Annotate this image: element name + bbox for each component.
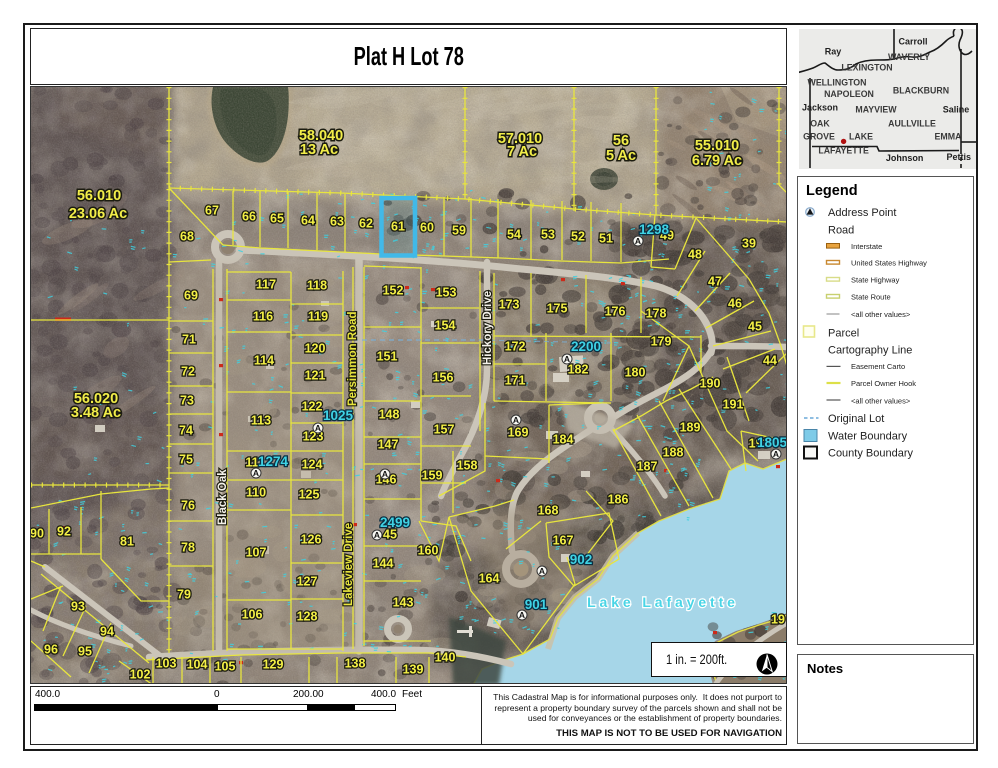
svg-text:106: 106: [242, 607, 263, 621]
svg-text:156: 156: [433, 370, 454, 384]
svg-text:<all other values>: <all other values>: [851, 397, 911, 406]
svg-text:167: 167: [553, 533, 574, 547]
svg-text:186: 186: [608, 492, 629, 506]
svg-text:124: 124: [302, 457, 323, 471]
svg-text:121: 121: [305, 368, 326, 382]
svg-text:103: 103: [156, 656, 177, 670]
svg-text:A: A: [374, 530, 380, 540]
svg-text:173: 173: [499, 297, 520, 311]
svg-text:County Boundary: County Boundary: [828, 448, 913, 460]
svg-text:125: 125: [299, 487, 320, 501]
svg-text:63: 63: [330, 214, 344, 228]
svg-text:7 Ac: 7 Ac: [507, 144, 537, 160]
svg-text:Johnson: Johnson: [886, 153, 924, 163]
svg-text:71: 71: [182, 332, 196, 346]
svg-text:188: 188: [663, 445, 684, 459]
svg-text:127: 127: [297, 574, 318, 588]
svg-text:39: 39: [742, 236, 756, 250]
svg-text:Address Point: Address Point: [828, 207, 896, 219]
svg-text:68: 68: [180, 229, 194, 243]
svg-text:95: 95: [78, 644, 92, 658]
svg-text:184: 184: [553, 432, 574, 446]
svg-text:104: 104: [187, 657, 208, 671]
svg-text:148: 148: [379, 407, 400, 421]
svg-text:107: 107: [246, 545, 267, 559]
svg-text:Easement Carto: Easement Carto: [851, 362, 905, 371]
svg-text:116: 116: [253, 309, 273, 323]
svg-text:Jackson: Jackson: [802, 103, 838, 113]
svg-text:Persimmon Road: Persimmon Road: [347, 311, 359, 406]
svg-text:74: 74: [179, 423, 193, 437]
svg-text:State Highway: State Highway: [851, 276, 900, 285]
svg-text:Original Lot: Original Lot: [828, 413, 884, 425]
svg-text:LEXINGTON: LEXINGTON: [841, 63, 892, 73]
svg-text:143: 143: [393, 595, 414, 609]
svg-text:62: 62: [359, 216, 373, 230]
svg-text:Carroll: Carroll: [898, 37, 927, 47]
svg-text:53: 53: [541, 227, 555, 241]
svg-text:Cartography Line: Cartography Line: [828, 345, 912, 357]
svg-text:A: A: [564, 354, 570, 364]
svg-text:OAK: OAK: [810, 118, 830, 128]
svg-text:78: 78: [181, 540, 195, 554]
svg-text:178: 178: [646, 306, 667, 320]
svg-text:176: 176: [605, 304, 626, 318]
svg-text:113: 113: [251, 413, 271, 427]
svg-text:73: 73: [180, 393, 194, 407]
svg-text:96: 96: [44, 642, 58, 656]
svg-text:119: 119: [308, 309, 328, 323]
svg-text:90: 90: [31, 526, 44, 540]
svg-text:191: 191: [723, 397, 744, 411]
svg-text:Ray: Ray: [825, 47, 842, 57]
svg-text:Parcel Owner Hook: Parcel Owner Hook: [851, 379, 916, 388]
svg-text:Lakeview Drive: Lakeview Drive: [343, 523, 355, 606]
svg-text:72: 72: [181, 364, 195, 378]
svg-text:LAKE: LAKE: [849, 132, 873, 142]
svg-text:154: 154: [435, 318, 456, 332]
svg-text:NAPOLEON: NAPOLEON: [824, 89, 874, 99]
svg-text:169: 169: [508, 425, 529, 439]
svg-text:189: 189: [680, 420, 701, 434]
svg-text:A: A: [382, 469, 388, 479]
svg-text:187: 187: [637, 459, 658, 473]
svg-text:67: 67: [205, 203, 219, 217]
svg-text:1805: 1805: [757, 435, 786, 450]
svg-text:60: 60: [420, 220, 434, 234]
svg-text:118: 118: [307, 278, 327, 292]
svg-text:19: 19: [771, 612, 785, 626]
svg-text:A: A: [635, 236, 641, 246]
svg-text:Saline: Saline: [943, 105, 970, 115]
svg-text:152: 152: [383, 283, 404, 297]
svg-text:180: 180: [625, 365, 646, 379]
svg-text:A: A: [519, 610, 525, 620]
svg-text:52: 52: [571, 229, 585, 243]
svg-text:3.48 Ac: 3.48 Ac: [71, 405, 121, 421]
svg-text:105: 105: [215, 659, 236, 673]
svg-text:140: 140: [435, 650, 456, 664]
svg-text:81: 81: [120, 534, 134, 548]
svg-text:126: 126: [301, 532, 322, 546]
svg-text:Road: Road: [828, 225, 854, 237]
svg-text:114: 114: [254, 353, 274, 367]
svg-text:157: 157: [434, 422, 455, 436]
svg-text:59: 59: [452, 223, 466, 237]
svg-text:Black Oak: Black Oak: [217, 469, 229, 525]
svg-text:A: A: [539, 566, 545, 576]
svg-text:94: 94: [100, 624, 114, 638]
svg-text:190: 190: [700, 376, 721, 390]
svg-text:WELLINGTON: WELLINGTON: [808, 78, 867, 88]
svg-text:171: 171: [505, 373, 526, 387]
svg-text:151: 151: [377, 349, 398, 363]
svg-text:144: 144: [373, 556, 394, 570]
svg-text:A: A: [253, 468, 259, 478]
svg-text:158: 158: [457, 458, 478, 472]
svg-text:47: 47: [708, 274, 722, 288]
svg-text:MAYVIEW: MAYVIEW: [855, 105, 897, 115]
svg-text:23.06 Ac: 23.06 Ac: [69, 206, 127, 222]
svg-text:A: A: [315, 423, 321, 433]
svg-text:13 Ac: 13 Ac: [300, 142, 338, 158]
svg-text:56.010: 56.010: [77, 188, 121, 204]
svg-text:AULLVILLE: AULLVILLE: [888, 118, 936, 128]
svg-text:LAFAYETTE: LAFAYETTE: [818, 145, 869, 155]
svg-text:56: 56: [613, 133, 629, 149]
svg-text:76: 76: [181, 498, 195, 512]
svg-text:147: 147: [378, 437, 399, 451]
svg-text:54: 54: [507, 227, 521, 241]
svg-text:902: 902: [570, 552, 593, 567]
svg-text:129: 129: [263, 657, 284, 671]
svg-text:92: 92: [57, 524, 71, 538]
svg-text:175: 175: [547, 301, 568, 315]
svg-text:128: 128: [297, 609, 318, 623]
svg-text:55.010: 55.010: [695, 138, 739, 154]
svg-text:Hickory Drive: Hickory Drive: [482, 291, 494, 365]
svg-text:WAVERLY: WAVERLY: [888, 52, 930, 62]
svg-text:GROVE: GROVE: [803, 132, 835, 142]
svg-text:79: 79: [177, 587, 191, 601]
svg-text:Pettis: Pettis: [946, 152, 971, 162]
svg-text:159: 159: [422, 468, 443, 482]
svg-text:75: 75: [179, 452, 193, 466]
svg-text:44: 44: [763, 353, 777, 367]
svg-text:2200: 2200: [571, 339, 601, 354]
svg-text:EMMA: EMMA: [935, 132, 963, 142]
svg-text:901: 901: [525, 597, 548, 612]
svg-text:66: 66: [242, 209, 256, 223]
svg-text:5 Ac: 5 Ac: [606, 148, 636, 164]
svg-text:Interstate: Interstate: [851, 242, 882, 251]
svg-text:168: 168: [538, 503, 559, 517]
svg-text:164: 164: [479, 571, 500, 585]
svg-text:51: 51: [599, 231, 613, 245]
svg-text:BLACKBURN: BLACKBURN: [893, 86, 949, 96]
svg-text:1298: 1298: [639, 222, 670, 237]
svg-text:Parcel: Parcel: [828, 328, 859, 340]
svg-text:138: 138: [345, 656, 366, 670]
svg-text:1025: 1025: [323, 408, 354, 423]
svg-text:United States Highway: United States Highway: [851, 259, 927, 268]
svg-text:45: 45: [748, 319, 762, 333]
svg-text:139: 139: [403, 662, 424, 676]
svg-text:172: 172: [505, 339, 526, 353]
svg-text:6.79 Ac: 6.79 Ac: [692, 153, 742, 169]
svg-text:Water Boundary: Water Boundary: [828, 431, 908, 443]
svg-text:122: 122: [302, 399, 323, 413]
svg-text:A: A: [773, 449, 779, 459]
svg-text:182: 182: [568, 362, 589, 376]
svg-text:L a k e L a f a y e t t e: L a k e L a f a y e t t e: [587, 594, 735, 610]
svg-text:<all other values>: <all other values>: [851, 310, 911, 319]
svg-text:160: 160: [418, 543, 439, 557]
svg-text:2499: 2499: [380, 515, 410, 530]
svg-text:120: 120: [305, 341, 326, 355]
svg-text:65: 65: [270, 211, 284, 225]
svg-text:117: 117: [256, 277, 276, 291]
svg-text:69: 69: [184, 288, 198, 302]
svg-text:46: 46: [728, 296, 742, 310]
svg-text:A: A: [513, 415, 519, 425]
svg-text:48: 48: [688, 247, 702, 261]
svg-text:110: 110: [246, 485, 266, 499]
svg-text:State Route: State Route: [851, 293, 891, 302]
svg-text:93: 93: [71, 599, 85, 613]
svg-text:179: 179: [651, 334, 672, 348]
svg-text:61: 61: [391, 219, 405, 233]
svg-text:64: 64: [301, 213, 315, 227]
svg-text:102: 102: [130, 667, 151, 681]
svg-text:1274: 1274: [258, 454, 289, 469]
svg-text:153: 153: [436, 285, 457, 299]
